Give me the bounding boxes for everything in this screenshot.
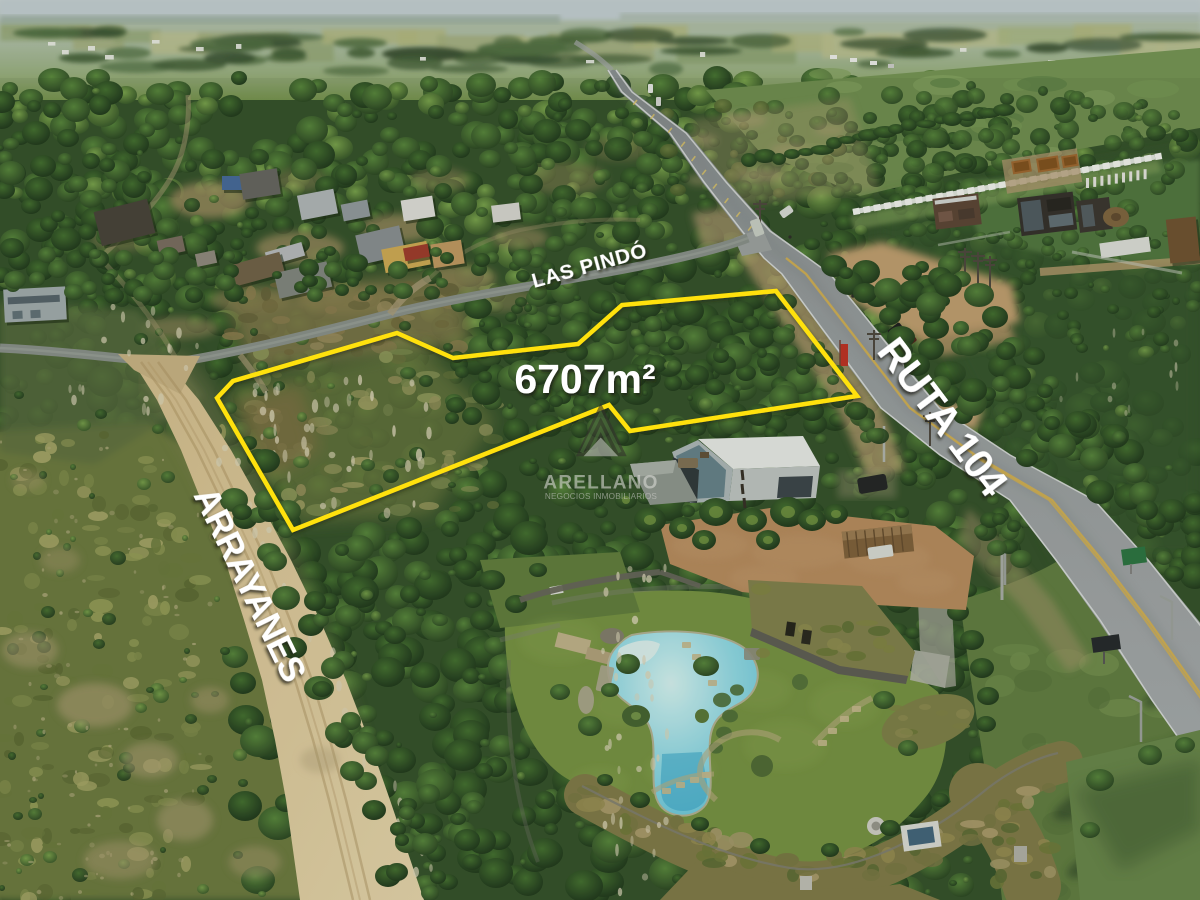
svg-text:ARELLANO: ARELLANO xyxy=(543,473,658,494)
svg-text:6707m²: 6707m² xyxy=(514,356,655,402)
svg-text:NEGOCIOS INMOBILIARIOS: NEGOCIOS INMOBILIARIOS xyxy=(545,492,658,501)
